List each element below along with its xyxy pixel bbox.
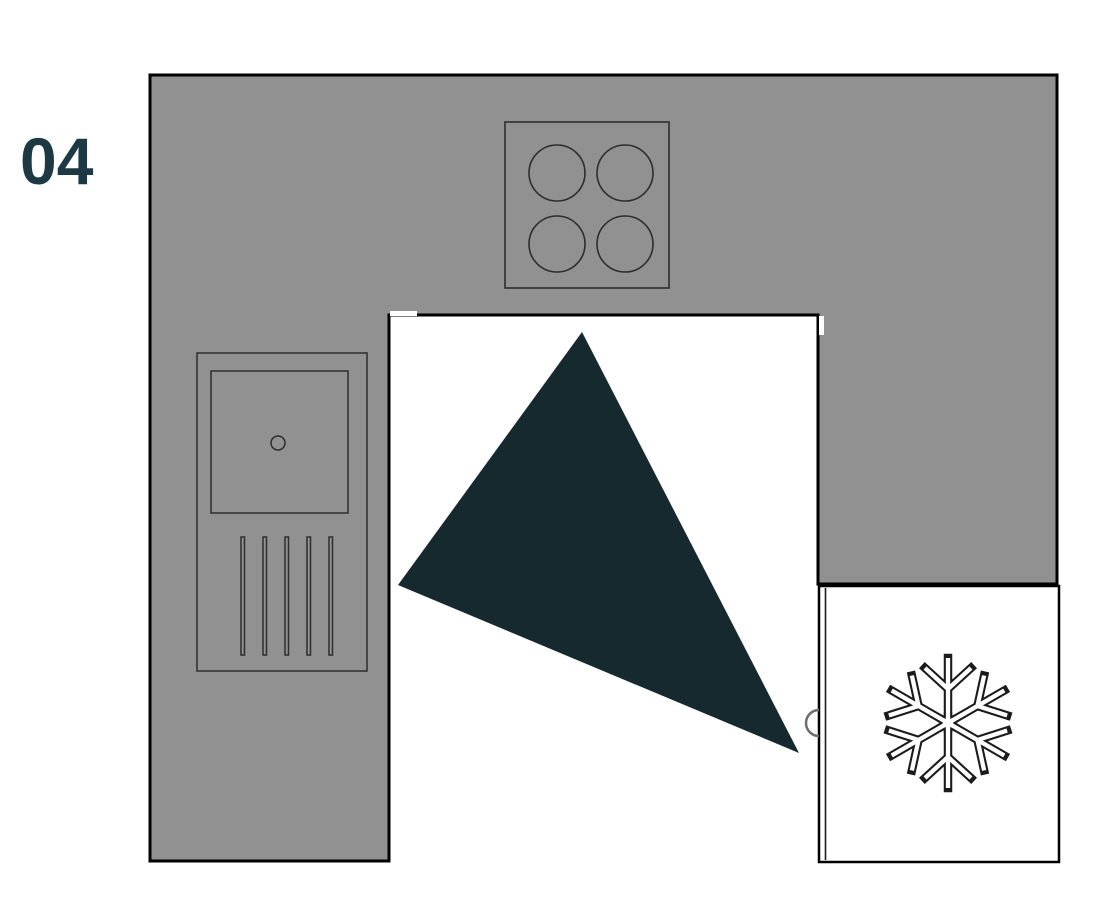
work-triangle-pointer: [398, 332, 799, 753]
floor-plan-svg: [0, 0, 1118, 923]
refrigerator: [806, 586, 1059, 862]
fridge-handle: [806, 710, 819, 736]
door-marker-left: [390, 311, 417, 316]
kitchen-plan-canvas: 04: [0, 0, 1118, 923]
door-marker-right: [819, 316, 824, 335]
